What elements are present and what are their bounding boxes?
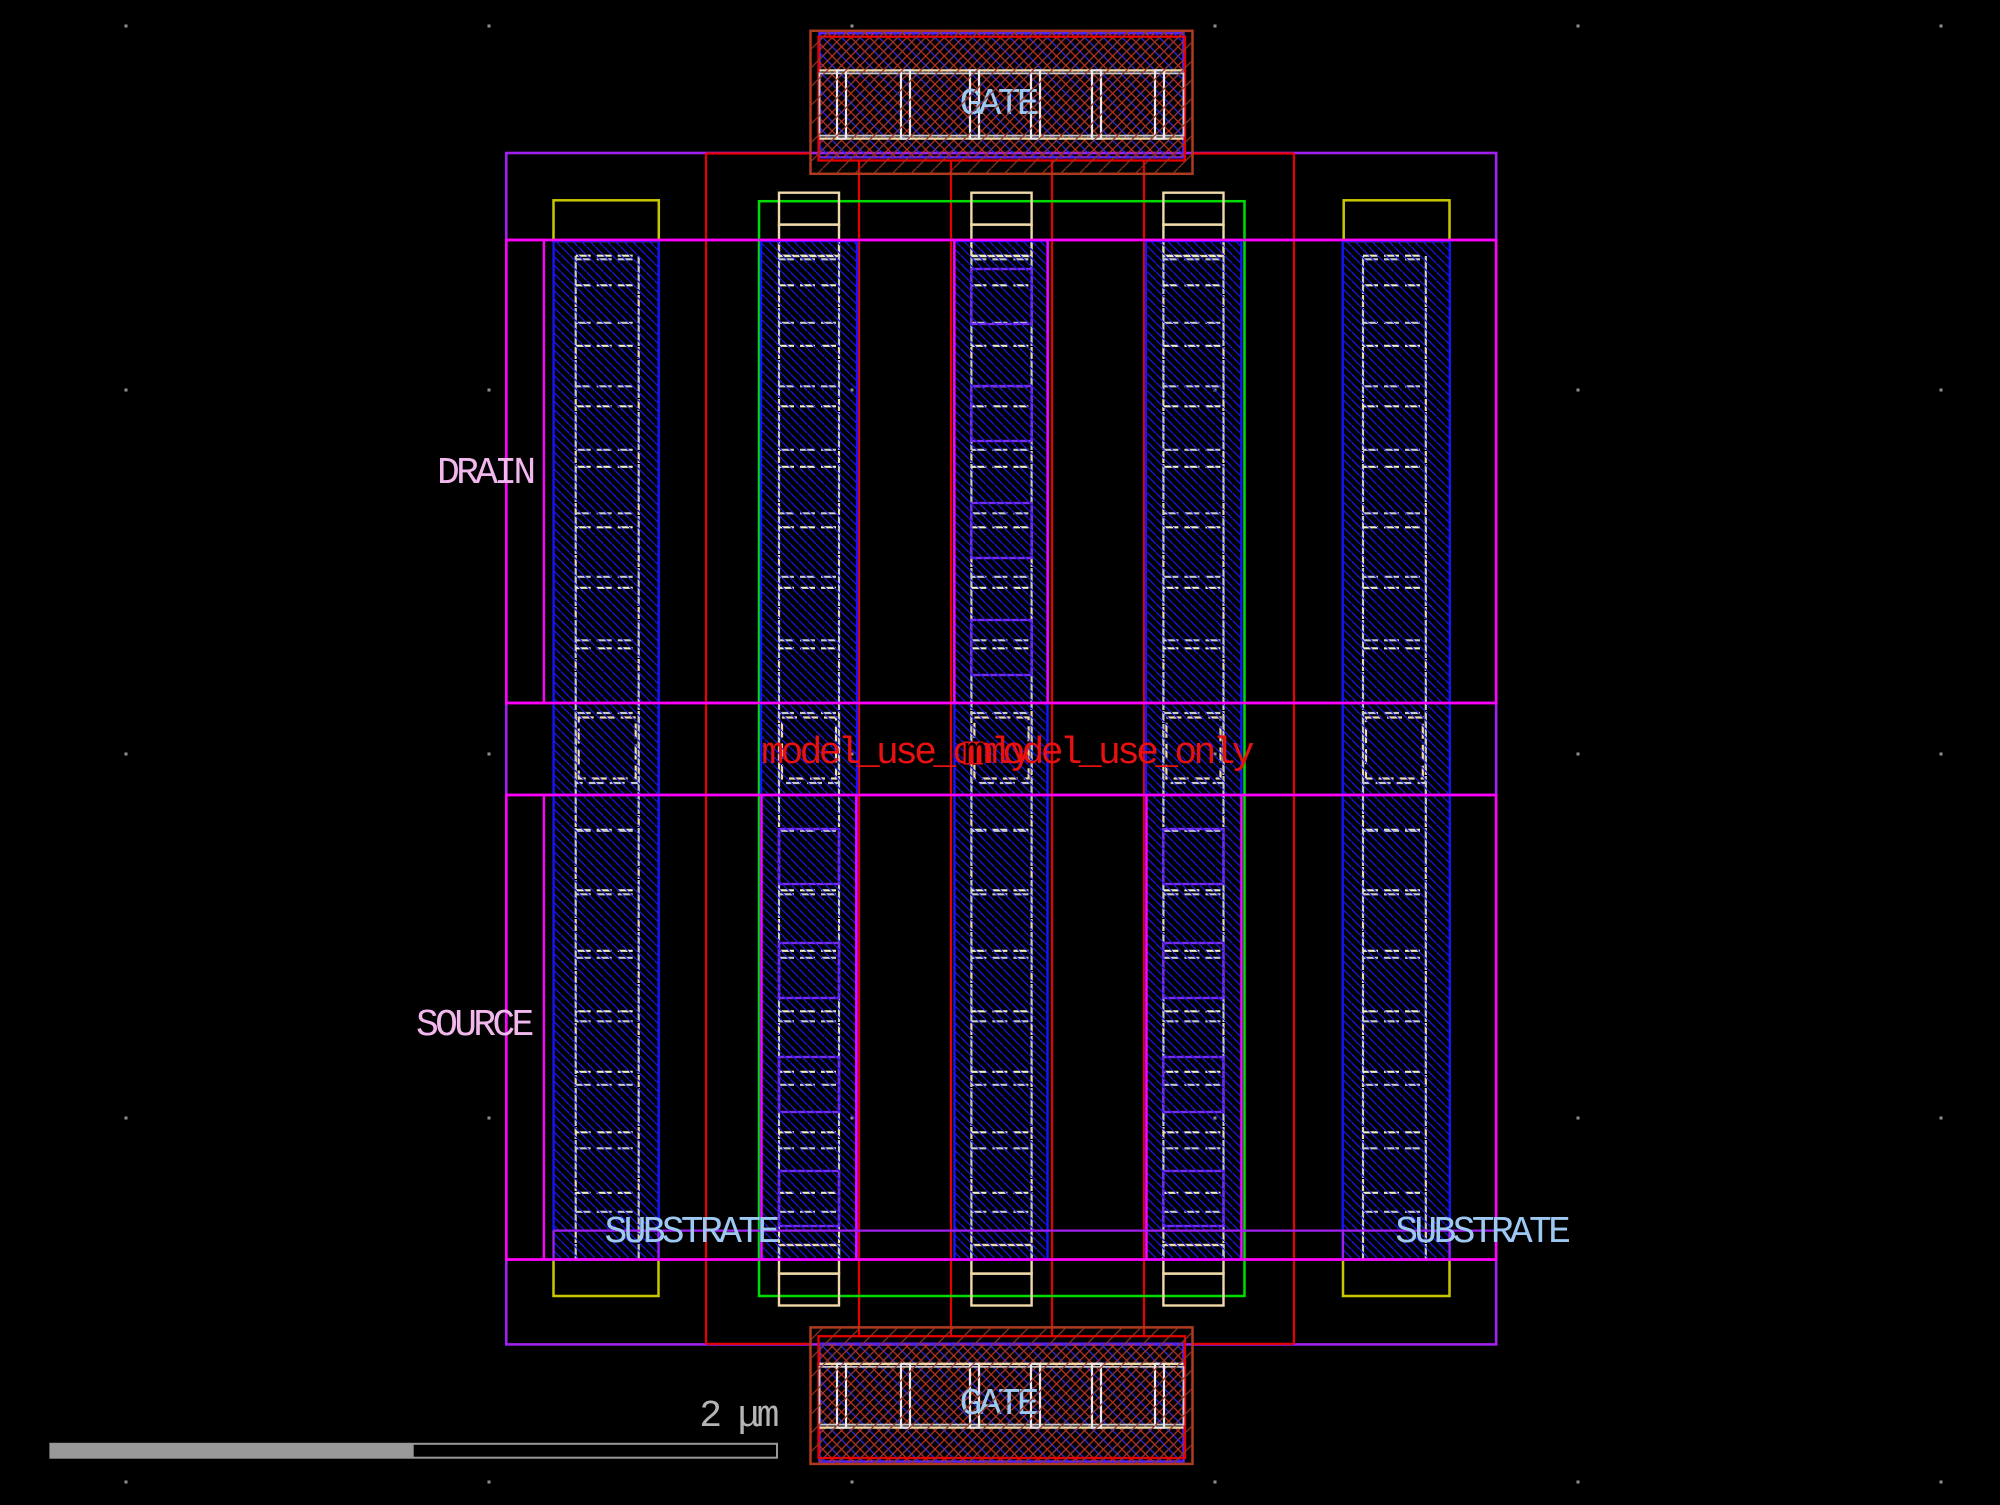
- svg-text:2 μm: 2 μm: [699, 1395, 777, 1438]
- svg-text:SUBSTRATE: SUBSTRATE: [605, 1211, 779, 1254]
- svg-text:SUBSTRATE: SUBSTRATE: [1395, 1211, 1569, 1254]
- svg-text:DRAIN: DRAIN: [437, 452, 533, 495]
- svg-text:model_use_only: model_use_only: [983, 732, 1253, 775]
- svg-text:m: m: [964, 732, 985, 775]
- svg-text:SOURCE: SOURCE: [416, 1004, 533, 1047]
